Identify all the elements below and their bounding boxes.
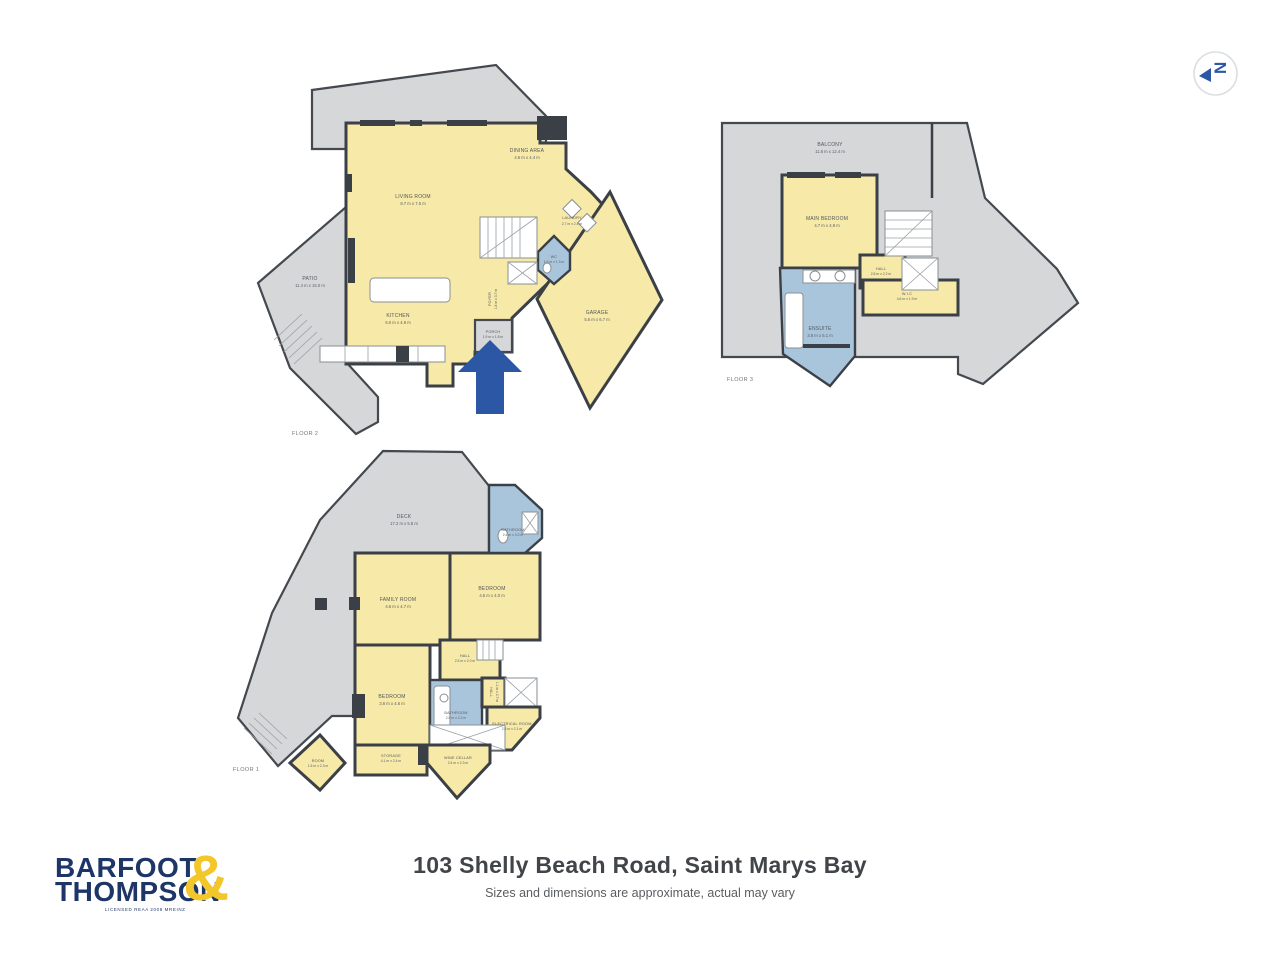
floor1-tag: FLOOR 1 bbox=[233, 767, 259, 773]
floor2-kitchen-dims: 6.0 m x 4.9 m bbox=[385, 320, 411, 325]
floor2-garage-dims: 5.6 m x 6.7 m bbox=[584, 317, 610, 322]
floor-2-plan: LIVING ROOM 8.7 m x 7.5 m DINING AREA 4.… bbox=[250, 52, 685, 444]
floor2-lift bbox=[508, 262, 537, 284]
floor1-hall-label: HALL bbox=[460, 654, 470, 658]
floor3-hall-dims: 2.8 m x 2.2 m bbox=[871, 272, 892, 276]
floor1-storage-label: STORAGE bbox=[381, 754, 401, 758]
floor1-deck-dims: 17.2 m x 5.8 m bbox=[390, 521, 418, 526]
floor1-wine-cellar-dims: 2.4 m x 2.3 m bbox=[448, 761, 469, 765]
floor2-dining-area-dims: 4.6 m x 4.4 m bbox=[514, 155, 540, 160]
floor1-wine-cellar-area bbox=[427, 745, 490, 798]
floor1-bathroom-lower-dims: 2.5 m x 2.2 m bbox=[446, 716, 467, 720]
floor3-hall-label: HALL bbox=[876, 267, 886, 271]
floor2-laundry-label: LAUNDRY bbox=[562, 216, 582, 220]
floor3-lift bbox=[902, 258, 938, 290]
floor1-deck-label: DECK bbox=[397, 514, 412, 520]
floor2-garage-label: GARAGE bbox=[586, 310, 609, 316]
floor3-balcony-label: BALCONY bbox=[817, 142, 843, 148]
floor2-kitchen-counter bbox=[320, 346, 445, 362]
floor1-room-dims: 1.5 m x 2.3 m bbox=[308, 764, 329, 768]
floor2-porch-dims: 1.9 m x 1.8 m bbox=[483, 335, 504, 339]
floor3-wic-label: W.I.C bbox=[902, 292, 912, 296]
floor-1-plan: DECK 17.2 m x 5.8 m FAMILY ROOM 4.6 m x … bbox=[222, 438, 572, 818]
floor2-laundry-dims: 2.7 m x 2.4 m bbox=[562, 222, 583, 226]
floor2-patio-label: PATIO bbox=[302, 276, 317, 282]
floor1-electrical-dims: 2.5 m x 2.1 m bbox=[502, 727, 523, 731]
floor3-balcony-dims: 11.8 m x 12.4 m bbox=[815, 149, 845, 154]
footer: 103 Shelly Beach Road, Saint Marys Bay S… bbox=[0, 852, 1280, 900]
compass-n-letter: N bbox=[1211, 62, 1230, 74]
floor1-hall-small-label: HALL bbox=[489, 687, 493, 697]
floor1-wine-cellar-label: WINE CELLAR bbox=[444, 756, 472, 760]
north-arrow-icon: N bbox=[1192, 50, 1239, 97]
floor2-wc-label: WC bbox=[551, 255, 558, 259]
floor2-kitchen-island bbox=[370, 278, 450, 302]
floor2-porch-label: PORCH bbox=[486, 330, 501, 334]
floor2-foyer-label: FOYER bbox=[488, 292, 492, 306]
floor2-foyer-dims: 1.8 m x 3.7 m bbox=[494, 289, 498, 310]
floor2-patio-dims: 11.4 m x 15.0 m bbox=[295, 283, 325, 288]
bathtub-lower-icon bbox=[434, 686, 450, 731]
floor2-wc-dims: 1.6 m x 1.3 m bbox=[544, 260, 565, 264]
floor1-electrical-label: ELECTRICAL ROOM bbox=[492, 722, 531, 726]
floor1-stairs bbox=[477, 640, 503, 660]
bathtub-icon bbox=[785, 293, 803, 348]
floor1-family-room-label: FAMILY ROOM bbox=[380, 597, 416, 603]
floor1-room-label: ROOM bbox=[312, 759, 325, 763]
floor3-ensuite-dims: 3.8 m x 5.1 m bbox=[807, 333, 833, 338]
floor1-bedroom-lower-label: BEDROOM bbox=[378, 694, 405, 700]
floor3-stairs bbox=[885, 211, 932, 256]
floor2-tag: FLOOR 2 bbox=[292, 431, 318, 437]
floor1-bedroom-lower-dims: 3.6 m x 4.6 m bbox=[379, 701, 405, 706]
floor1-storage-dims: 4.1 m x 2.4 m bbox=[381, 759, 402, 763]
floor1-hall-dims: 2.5 m x 2.0 m bbox=[455, 659, 476, 663]
floor1-bathroom-top-label: BATHROOM bbox=[501, 528, 524, 532]
floor1-bedroom-top-dims: 4.5 m x 4.0 m bbox=[479, 593, 505, 598]
floor1-bathroom-top-dims: 2.4 m x 3.0 m bbox=[503, 533, 524, 537]
floor1-lift bbox=[505, 678, 537, 707]
property-address: 103 Shelly Beach Road, Saint Marys Bay bbox=[0, 852, 1280, 879]
floor2-living-room-dims: 8.7 m x 7.5 m bbox=[400, 201, 426, 206]
floor1-bedroom-top-label: BEDROOM bbox=[478, 586, 505, 592]
floor2-dining-area-label: DINING AREA bbox=[510, 148, 545, 154]
floor3-main-bedroom-dims: 4.7 m x 4.8 m bbox=[814, 223, 840, 228]
floor1-bathroom-lower-label: BATHROOM bbox=[444, 711, 467, 715]
floor1-hall-small-dims: 1.1 m x 2.7 m bbox=[495, 682, 499, 703]
floor2-kitchen-label: KITCHEN bbox=[386, 313, 410, 319]
floor3-main-bedroom-label: MAIN BEDROOM bbox=[806, 216, 848, 222]
floor1-family-room-dims: 4.6 m x 4.7 m bbox=[385, 604, 411, 609]
floor2-living-room-label: LIVING ROOM bbox=[395, 194, 431, 200]
floor3-ensuite-label: ENSUITE bbox=[808, 326, 832, 332]
floorplan-sheet: LIVING ROOM 8.7 m x 7.5 m DINING AREA 4.… bbox=[0, 0, 1280, 960]
disclaimer: Sizes and dimensions are approximate, ac… bbox=[0, 886, 1280, 900]
floor-3-plan: BALCONY 11.8 m x 12.4 m MAIN BEDROOM 4.7… bbox=[715, 108, 1085, 413]
floor2-stairs bbox=[480, 217, 537, 258]
floor3-wic-dims: 4.6 m x 1.9 m bbox=[897, 297, 918, 301]
floor3-tag: FLOOR 3 bbox=[727, 377, 753, 383]
